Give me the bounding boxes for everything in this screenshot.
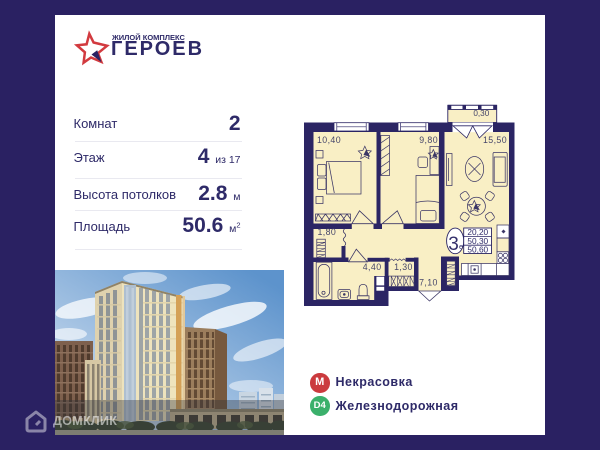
svg-text:7,10: 7,10 <box>419 278 438 288</box>
svg-text:9,80: 9,80 <box>419 135 438 145</box>
svg-text:4,40: 4,40 <box>363 262 382 272</box>
svg-text:1,30: 1,30 <box>394 262 413 272</box>
svg-text:0,30: 0,30 <box>473 109 489 118</box>
svg-text:15,50: 15,50 <box>483 135 507 145</box>
svg-text:50,60: 50,60 <box>467 244 488 254</box>
svg-text:1,80: 1,80 <box>318 227 337 237</box>
svg-text:10,40: 10,40 <box>317 135 341 145</box>
svg-text:е: е <box>459 242 463 251</box>
svg-text:3: 3 <box>448 234 459 255</box>
